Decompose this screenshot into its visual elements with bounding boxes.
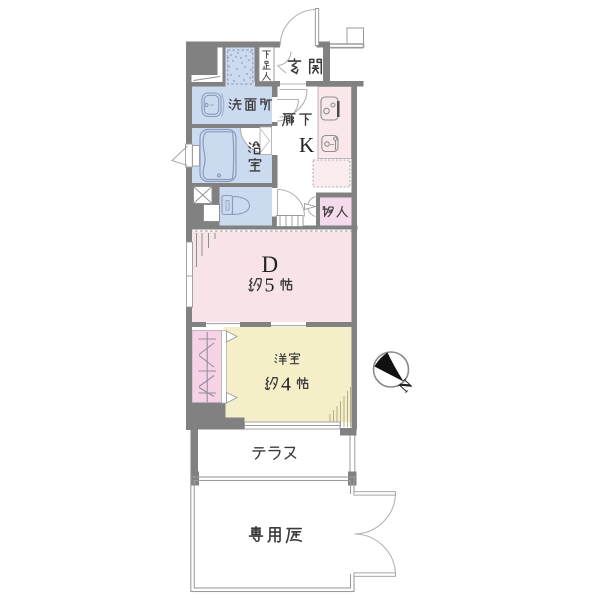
svg-text:5: 5: [265, 275, 275, 297]
svg-text:K: K: [299, 133, 314, 157]
svg-text:D: D: [262, 252, 279, 277]
svg-text:4: 4: [281, 374, 291, 396]
